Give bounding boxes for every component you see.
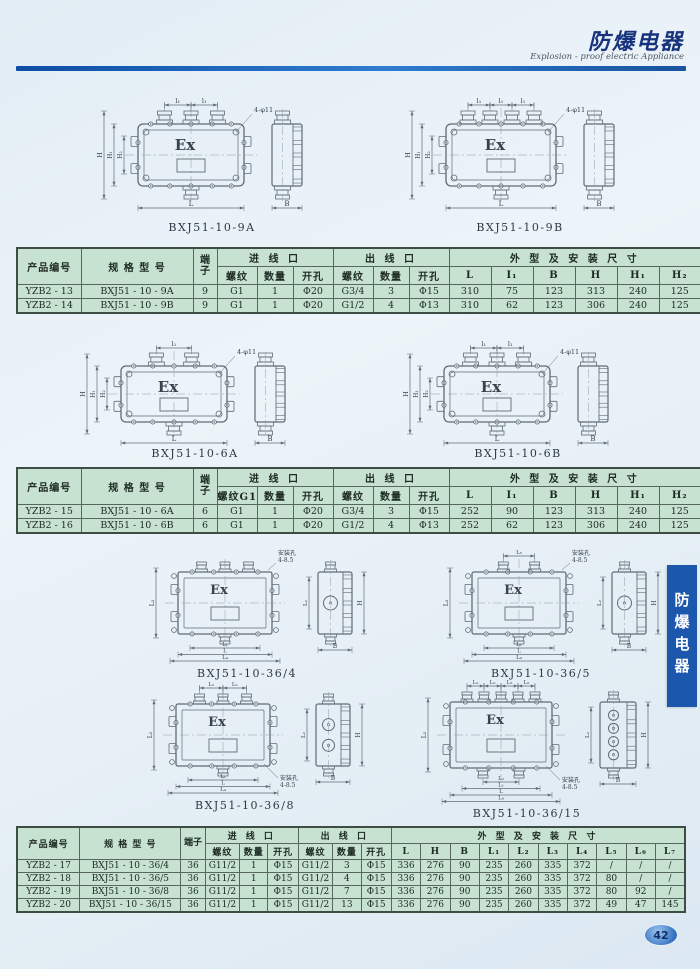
diagram-bxj51-10-6a: Exl₁HH₁H₂L4-φ11B BXJ51-10-6A: [75, 334, 315, 462]
table-cell: 240: [617, 299, 659, 314]
svg-text:B: B: [590, 435, 595, 443]
column-header: 开孔: [268, 844, 298, 860]
table-cell: 90: [450, 860, 479, 873]
table-cell: BXJ51 - 10 - 9B: [81, 299, 193, 314]
column-header: 数量: [373, 267, 409, 285]
table-cell: 36: [181, 860, 205, 873]
column-group-header: 外 型 及 安 装 尺 寸: [449, 248, 700, 267]
diagram-bxj51-10-6b: Exl₁l₁HH₁H₂L4-φ11B BXJ51-10-6B: [398, 334, 638, 462]
svg-text:L: L: [172, 435, 177, 443]
svg-text:L: L: [499, 789, 503, 795]
table-cell: 276: [421, 860, 450, 873]
svg-text:B: B: [331, 775, 336, 782]
table-cell: G3/4: [333, 505, 373, 519]
table-cell: 335: [538, 873, 567, 886]
svg-text:H: H: [357, 600, 364, 605]
table-cell: 1: [257, 285, 293, 299]
svg-text:L₅: L₅: [490, 680, 496, 686]
table-cell: 3: [373, 285, 409, 299]
column-group-header: 产品编号: [17, 827, 80, 860]
svg-text:L₂: L₂: [301, 732, 307, 738]
svg-text:L₃: L₃: [149, 599, 156, 606]
table-cell: G1/2: [333, 519, 373, 534]
svg-text:L₅: L₅: [208, 682, 214, 688]
table-cell: G1: [217, 519, 257, 534]
column-header: 螺纹: [333, 487, 373, 505]
table-cell: 6: [193, 505, 217, 519]
table-cell: 123: [533, 299, 575, 314]
column-group-header: 规 格 型 号: [81, 468, 193, 505]
junction-box-drawing: Exl₁HH₁H₂L4-φ11B: [75, 334, 315, 446]
table-cell: Φ15: [268, 886, 298, 899]
table-cell: G1: [217, 505, 257, 519]
spec-table: 产品编号规 格 型 号端子进 线 口出 线 口外 型 及 安 装 尺 寸螺纹G1…: [16, 467, 700, 534]
table-cell: YZB2 - 17: [17, 860, 80, 873]
table-cell: 235: [479, 860, 508, 873]
diagram-bxj51-10-9a: Exl₁l₁HH₁H₂L4-φ11B BXJ51-10-9A: [92, 84, 332, 236]
column-header: H₂: [659, 487, 700, 505]
svg-text:l₁: l₁: [175, 97, 180, 105]
column-group-header: 端子: [193, 248, 217, 285]
table-cell: G11/2: [205, 886, 239, 899]
svg-text:L₄: L₄: [220, 787, 227, 793]
junction-box-drawing: ExL₅L₅L₅L₅L₃L₂L₁LL₄安装孔4-8.5BL₂H: [392, 676, 662, 806]
table-cell: G11/2: [298, 886, 332, 899]
table-cell: Φ15: [409, 505, 449, 519]
diagram-caption: BXJ51-10-9B: [400, 221, 640, 234]
table-cell: 13: [333, 899, 361, 913]
svg-text:H₂: H₂: [100, 390, 107, 398]
table-cell: G1: [217, 299, 257, 314]
table-cell: BXJ51 - 10 - 36/4: [80, 860, 181, 873]
table-cell: 240: [617, 505, 659, 519]
column-group-header: 进 线 口: [217, 468, 333, 487]
table-row: YZB2 - 13BXJ51 - 10 - 9A9G11Φ20G3/43Φ153…: [17, 285, 700, 299]
svg-text:H₁: H₁: [413, 390, 420, 398]
svg-text:4-φ11: 4-φ11: [237, 348, 256, 356]
svg-text:L: L: [189, 200, 194, 208]
column-header: H: [421, 844, 450, 860]
table-cell: 9: [193, 299, 217, 314]
svg-text:L₄: L₄: [516, 655, 523, 661]
table-row: YZB2 - 20BXJ51 - 10 - 36/1536G11/21Φ15G1…: [17, 899, 685, 913]
column-group-header: 产品编号: [17, 468, 81, 505]
table-cell: 310: [449, 285, 491, 299]
table-cell: YZB2 - 19: [17, 886, 80, 899]
column-header: 开孔: [293, 487, 333, 505]
svg-text:H₁: H₁: [90, 390, 97, 398]
table-cell: 145: [655, 899, 685, 913]
table-cell: 1: [257, 299, 293, 314]
column-header: 螺纹: [298, 844, 332, 860]
diagram-bxj51-10-36-15: ExL₅L₅L₅L₅L₃L₂L₁LL₄安装孔4-8.5BL₂H BXJ51-10…: [392, 676, 662, 820]
table-cell: YZB2 - 16: [17, 519, 81, 534]
side-tab-label: 防爆电器: [672, 592, 693, 680]
table-cell: Φ20: [293, 505, 333, 519]
table-cell: 6: [193, 519, 217, 534]
table-cell: 123: [533, 519, 575, 534]
table-cell: 4: [333, 873, 361, 886]
table-row: YZB2 - 14BXJ51 - 10 - 9B9G11Φ20G1/24Φ133…: [17, 299, 700, 314]
table-cell: 90: [491, 505, 533, 519]
column-group-header: 进 线 口: [217, 248, 333, 267]
junction-box-drawing: ExL₅L₅L₃L₁LL₄安装孔4-8.5BL₂H: [120, 678, 370, 798]
column-group-header: 规 格 型 号: [81, 248, 193, 285]
table-cell: Φ15: [361, 886, 391, 899]
table-cell: Φ15: [361, 860, 391, 873]
junction-box-drawing: Exl₁l₁HH₁H₂L4-φ11B: [398, 334, 638, 446]
svg-text:l₁: l₁: [172, 340, 177, 348]
table-cell: 252: [449, 519, 491, 534]
table-cell: BXJ51 - 10 - 6B: [81, 519, 193, 534]
table-cell: 123: [533, 505, 575, 519]
table-cell: 9: [193, 285, 217, 299]
diagram-bxj51-10-36-8: ExL₅L₅L₃L₁LL₄安装孔4-8.5BL₂H BXJ51-10-36/8: [120, 678, 370, 812]
column-header: L: [391, 844, 420, 860]
table-cell: 90: [450, 873, 479, 886]
table-cell: 372: [567, 860, 596, 873]
table-cell: 240: [617, 285, 659, 299]
column-group-header: 规 格 型 号: [80, 827, 181, 860]
table-cell: YZB2 - 18: [17, 873, 80, 886]
table-row: YZB2 - 16BXJ51 - 10 - 6B6G11Φ20G1/24Φ132…: [17, 519, 700, 534]
svg-text:4-φ11: 4-φ11: [566, 106, 585, 114]
table-cell: 335: [538, 860, 567, 873]
page-number-badge: 42: [644, 924, 678, 946]
svg-text:4-8.5: 4-8.5: [278, 557, 294, 564]
junction-box-drawing: ExL₃L₁LL₄安装孔4-8.5BL₂H: [122, 546, 372, 666]
svg-text:H: H: [641, 732, 648, 737]
column-header: 数量: [257, 487, 293, 505]
svg-text:Ex: Ex: [158, 378, 179, 396]
svg-text:l₁: l₁: [202, 97, 207, 105]
svg-text:H₂: H₂: [425, 151, 432, 159]
svg-text:L₃: L₃: [421, 731, 428, 738]
column-header: B: [533, 267, 575, 285]
svg-text:4-φ11: 4-φ11: [560, 348, 579, 356]
table-cell: 306: [575, 519, 617, 534]
diagram-caption: BXJ51-10-36/8: [120, 799, 370, 812]
column-header: L₃: [538, 844, 567, 860]
table-cell: 3: [373, 505, 409, 519]
svg-text:B: B: [267, 435, 272, 443]
table-cell: 260: [509, 899, 538, 913]
table-cell: /: [655, 873, 685, 886]
table-cell: 123: [533, 285, 575, 299]
table-cell: /: [626, 860, 655, 873]
svg-text:l₁: l₁: [477, 97, 482, 105]
svg-text:安装孔: 安装孔: [572, 549, 590, 557]
column-header: 数量: [257, 267, 293, 285]
junction-box-drawing: Exl₁l₁l₁HH₁H₂L4-φ11B: [400, 84, 640, 220]
table-cell: 7: [333, 886, 361, 899]
svg-text:l₁: l₁: [481, 340, 486, 348]
svg-text:H₂: H₂: [423, 390, 430, 398]
table-cell: 306: [575, 299, 617, 314]
diagram-bxj51-10-9b: Exl₁l₁l₁HH₁H₂L4-φ11B BXJ51-10-9B: [400, 84, 640, 236]
table-cell: BXJ51 - 10 - 9A: [81, 285, 193, 299]
column-header: I₁: [491, 267, 533, 285]
svg-text:L₂: L₂: [303, 600, 309, 606]
svg-text:H₁: H₁: [107, 151, 114, 159]
table-cell: Φ15: [361, 899, 391, 913]
table-cell: Φ15: [268, 873, 298, 886]
table-cell: 36: [181, 899, 205, 913]
table-cell: YZB2 - 14: [17, 299, 81, 314]
table-row: YZB2 - 15BXJ51 - 10 - 6A6G11Φ20G3/43Φ152…: [17, 505, 700, 519]
svg-text:B: B: [284, 200, 289, 208]
svg-text:l₁: l₁: [499, 97, 504, 105]
table-cell: YZB2 - 13: [17, 285, 81, 299]
table-cell: 36: [181, 886, 205, 899]
table-cell: 75: [491, 285, 533, 299]
table-cell: 49: [597, 899, 626, 913]
table-cell: 276: [421, 873, 450, 886]
table-cell: 335: [538, 886, 567, 899]
page-number: 42: [653, 929, 668, 942]
table-cell: 125: [659, 285, 700, 299]
table-cell: G1/2: [333, 299, 373, 314]
table-cell: Φ20: [293, 519, 333, 534]
column-group-header: 出 线 口: [298, 827, 391, 844]
diagram-caption: BXJ51-10-6A: [75, 447, 315, 460]
svg-text:Ex: Ex: [210, 583, 228, 598]
table-cell: 372: [567, 899, 596, 913]
table-cell: 260: [509, 860, 538, 873]
diagram-bxj51-10-36-5: ExL₅L₃L₁LL₄安装孔4-8.5BL₂H BXJ51-10-36/5: [416, 546, 666, 680]
table-cell: /: [626, 873, 655, 886]
svg-text:安装孔: 安装孔: [280, 774, 298, 782]
column-header: H₁: [617, 267, 659, 285]
svg-text:H: H: [404, 152, 412, 158]
svg-text:Ex: Ex: [175, 136, 196, 154]
table-cell: 372: [567, 873, 596, 886]
svg-text:L₅: L₅: [507, 680, 513, 686]
table-cell: /: [655, 886, 685, 899]
column-header: L₂: [509, 844, 538, 860]
svg-text:l₁: l₁: [508, 340, 513, 348]
svg-text:L₁: L₁: [498, 783, 504, 789]
table-cell: BXJ51 - 10 - 36/15: [80, 899, 181, 913]
svg-text:L₂: L₂: [585, 732, 591, 738]
svg-text:4-8.5: 4-8.5: [280, 782, 296, 789]
table-cell: G11/2: [298, 899, 332, 913]
junction-box-drawing: ExL₅L₃L₁LL₄安装孔4-8.5BL₂H: [416, 546, 666, 666]
table-cell: G11/2: [298, 873, 332, 886]
diagram-bxj51-10-36-4: ExL₃L₁LL₄安装孔4-8.5BL₂H BXJ51-10-36/4: [122, 546, 372, 680]
column-header: 数量: [373, 487, 409, 505]
table-cell: G3/4: [333, 285, 373, 299]
svg-text:Ex: Ex: [485, 136, 506, 154]
svg-text:Ex: Ex: [481, 378, 502, 396]
column-group-header: 进 线 口: [205, 827, 298, 844]
column-header: I₁: [491, 487, 533, 505]
table-row: YZB2 - 19BXJ51 - 10 - 36/836G11/21Φ15G11…: [17, 886, 685, 899]
table-cell: 62: [491, 299, 533, 314]
column-header: H₁: [617, 487, 659, 505]
table-cell: 1: [240, 886, 268, 899]
table-cell: G11/2: [205, 899, 239, 913]
table-cell: Φ13: [409, 519, 449, 534]
table-cell: Φ20: [293, 299, 333, 314]
table-row: YZB2 - 18BXJ51 - 10 - 36/536G11/21Φ15G11…: [17, 873, 685, 886]
svg-text:Ex: Ex: [208, 715, 226, 730]
table-cell: Φ15: [268, 899, 298, 913]
column-header: 开孔: [361, 844, 391, 860]
svg-text:L₅: L₅: [473, 680, 479, 686]
table-cell: 1: [257, 505, 293, 519]
table-cell: 336: [391, 899, 420, 913]
svg-text:L: L: [221, 781, 225, 787]
table-cell: 1: [257, 519, 293, 534]
spec-table: 产品编号规 格 型 号端子进 线 口出 线 口外 型 及 安 装 尺 寸螺纹数量…: [16, 826, 686, 913]
table-cell: 240: [617, 519, 659, 534]
svg-text:L₁: L₁: [220, 774, 226, 780]
column-header: 数量: [240, 844, 268, 860]
page: 防爆电器 Explosion - proof electric Applianc…: [0, 0, 700, 969]
junction-box-drawing: Exl₁l₁HH₁H₂L4-φ11B: [92, 84, 332, 220]
column-header: 螺纹: [205, 844, 239, 860]
svg-text:安装孔: 安装孔: [562, 776, 580, 784]
svg-text:L₄: L₄: [498, 796, 505, 802]
table-cell: G11/2: [205, 860, 239, 873]
column-header: 螺纹: [333, 267, 373, 285]
table-cell: 252: [449, 505, 491, 519]
table-cell: 125: [659, 505, 700, 519]
column-header: L: [449, 487, 491, 505]
svg-text:L₄: L₄: [222, 655, 229, 661]
table-cell: 4: [373, 519, 409, 534]
table-cell: 336: [391, 886, 420, 899]
table-cell: 62: [491, 519, 533, 534]
column-header: L₁: [479, 844, 508, 860]
svg-text:4-8.5: 4-8.5: [572, 557, 588, 564]
column-header: L: [449, 267, 491, 285]
table-cell: 336: [391, 873, 420, 886]
table-cell: YZB2 - 20: [17, 899, 80, 913]
column-header: 开孔: [409, 267, 449, 285]
svg-text:L: L: [223, 649, 227, 655]
table-cell: 1: [240, 860, 268, 873]
column-group-header: 产品编号: [17, 248, 81, 285]
svg-text:Ex: Ex: [504, 583, 522, 598]
table-cell: Φ15: [361, 873, 391, 886]
side-tab: 防爆电器: [667, 565, 697, 707]
table-cell: 235: [479, 873, 508, 886]
svg-text:安装孔: 安装孔: [278, 549, 296, 557]
table-cell: /: [597, 860, 626, 873]
table-cell: 310: [449, 299, 491, 314]
table-cell: 313: [575, 505, 617, 519]
table-cell: 1: [240, 899, 268, 913]
svg-text:B: B: [333, 643, 338, 650]
table-cell: BXJ51 - 10 - 6A: [81, 505, 193, 519]
table-cell: 276: [421, 899, 450, 913]
column-header: 开孔: [293, 267, 333, 285]
svg-text:4-φ11: 4-φ11: [254, 106, 273, 114]
svg-text:B: B: [616, 777, 621, 784]
table-cell: 335: [538, 899, 567, 913]
column-group-header: 外 型 及 安 装 尺 寸: [449, 468, 700, 487]
svg-text:H₂: H₂: [117, 151, 124, 159]
diagram-caption: BXJ51-10-36/15: [392, 807, 662, 820]
svg-text:H: H: [355, 732, 362, 737]
diagram-caption: BXJ51-10-9A: [92, 221, 332, 234]
svg-text:L₁: L₁: [222, 642, 228, 648]
column-header: B: [450, 844, 479, 860]
table-cell: Φ15: [268, 860, 298, 873]
column-header: H: [575, 487, 617, 505]
svg-text:H: H: [79, 391, 87, 397]
column-header: L₇: [655, 844, 685, 860]
page-subtitle: Explosion - proof electric Appliance: [530, 52, 684, 62]
spec-table-bxj51-10-9: 产品编号规 格 型 号端子进 线 口出 线 口外 型 及 安 装 尺 寸螺纹数量…: [16, 247, 686, 314]
table-cell: 80: [597, 886, 626, 899]
svg-text:H: H: [402, 391, 410, 397]
svg-text:L₅: L₅: [516, 550, 522, 556]
table-cell: 3: [333, 860, 361, 873]
table-cell: Φ15: [409, 285, 449, 299]
svg-text:L₂: L₂: [597, 600, 603, 606]
column-header: L₆: [626, 844, 655, 860]
column-header: H: [575, 267, 617, 285]
table-cell: 90: [450, 886, 479, 899]
spec-table-bxj51-10-36: 产品编号规 格 型 号端子进 线 口出 线 口外 型 及 安 装 尺 寸螺纹数量…: [16, 826, 686, 913]
svg-text:H: H: [651, 600, 658, 605]
table-cell: 80: [597, 873, 626, 886]
column-header: L₄: [567, 844, 596, 860]
table-cell: 125: [659, 299, 700, 314]
svg-text:4-8.5: 4-8.5: [562, 784, 578, 791]
column-group-header: 端子: [181, 827, 205, 860]
table-row: YZB2 - 17BXJ51 - 10 - 36/436G11/21Φ15G11…: [17, 860, 685, 873]
table-cell: 372: [567, 886, 596, 899]
svg-text:L: L: [517, 649, 521, 655]
svg-text:L₂: L₂: [498, 776, 504, 782]
column-header: B: [533, 487, 575, 505]
table-cell: 235: [479, 886, 508, 899]
column-header: H₂: [659, 267, 700, 285]
svg-text:L₃: L₃: [443, 599, 450, 606]
spec-table: 产品编号规 格 型 号端子进 线 口出 线 口外 型 及 安 装 尺 寸螺纹数量…: [16, 247, 700, 314]
table-cell: Φ20: [293, 285, 333, 299]
table-cell: 336: [391, 860, 420, 873]
table-cell: BXJ51 - 10 - 36/8: [80, 886, 181, 899]
svg-text:L₁: L₁: [516, 642, 522, 648]
table-cell: Φ13: [409, 299, 449, 314]
table-cell: 313: [575, 285, 617, 299]
table-cell: 125: [659, 519, 700, 534]
svg-text:L₃: L₃: [147, 731, 154, 738]
column-header: L₅: [597, 844, 626, 860]
spec-table-bxj51-10-6: 产品编号规 格 型 号端子进 线 口出 线 口外 型 及 安 装 尺 寸螺纹G1…: [16, 467, 686, 534]
column-header: 开孔: [409, 487, 449, 505]
svg-text:Ex: Ex: [486, 713, 504, 728]
table-cell: 260: [509, 886, 538, 899]
svg-text:l₁: l₁: [521, 97, 526, 105]
table-cell: 235: [479, 899, 508, 913]
table-cell: 276: [421, 886, 450, 899]
column-group-header: 出 线 口: [333, 468, 449, 487]
table-cell: G1: [217, 285, 257, 299]
svg-text:L₅: L₅: [524, 680, 530, 686]
table-cell: G11/2: [298, 860, 332, 873]
table-cell: 90: [450, 899, 479, 913]
column-header: 数量: [333, 844, 361, 860]
column-group-header: 端子: [193, 468, 217, 505]
table-cell: 4: [373, 299, 409, 314]
table-cell: YZB2 - 15: [17, 505, 81, 519]
